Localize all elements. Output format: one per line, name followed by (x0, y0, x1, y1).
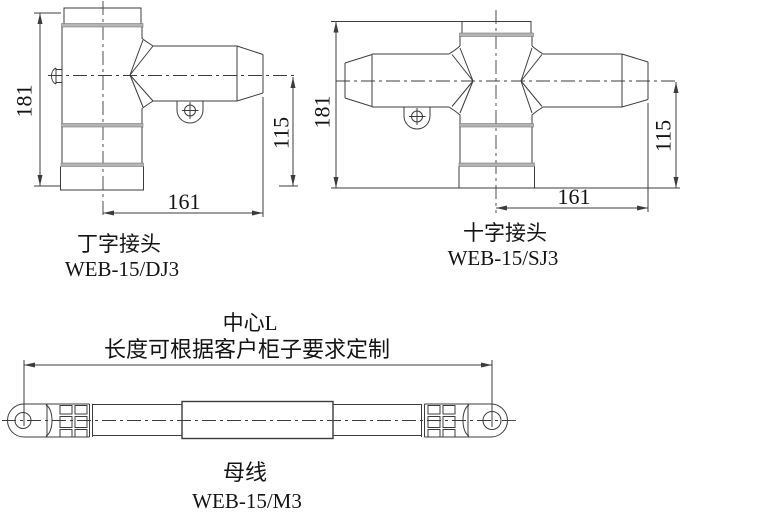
cross-joint-tube-outline (459, 22, 535, 189)
t-joint-figure: 181 115 161 丁字接头 WEB-15/DJ3 (12, 1, 299, 281)
t-joint-nub (52, 68, 63, 84)
t-joint-title: 丁字接头 (77, 232, 161, 256)
cross-joint-centerlines (336, 10, 679, 213)
t-joint-width-value: 161 (168, 189, 201, 214)
busbar-left-end (8, 360, 53, 437)
technical-drawing: 181 115 161 丁字接头 WEB-15/DJ3 (0, 0, 783, 523)
busbar-length-note: 长度可根据客户柜子要求定制 (104, 337, 390, 362)
t-joint-model: WEB-15/DJ3 (65, 257, 179, 281)
busbar-right-end (463, 360, 508, 437)
busbar-title: 母线 (223, 460, 267, 485)
cross-joint-title: 十字接头 (463, 221, 547, 245)
cross-joint-figure: 181 115 161 十字接头 WEB-15/SJ3 (310, 10, 681, 270)
t-joint-branch-height-dimension: 115 (269, 77, 299, 186)
busbar-body (93, 402, 422, 439)
cross-joint-branch-height-dimension: 115 (651, 82, 679, 188)
t-joint-arm-outline (130, 39, 263, 109)
t-joint-width-dimension: 161 (103, 97, 263, 217)
cross-joint-branch-height-value: 115 (651, 120, 676, 152)
t-joint-tube-outline (61, 8, 144, 190)
busbar-center-label: 中心L (223, 311, 278, 335)
busbar-length-dimension: 中心L 长度可根据客户柜子要求定制 (24, 311, 492, 368)
cross-joint-width-value: 161 (558, 184, 591, 209)
busbar-figure: 中心L 长度可根据客户柜子要求定制 母线 WEB-15/M3 (2, 311, 516, 513)
t-joint-height-dimension: 181 (12, 13, 62, 186)
t-joint-height-value: 181 (12, 85, 37, 118)
t-joint-screw-lug (177, 101, 203, 123)
cross-joint-left-arm-outline (345, 46, 473, 115)
t-joint-branch-height-value: 115 (269, 117, 294, 149)
t-joint-centerlines (48, 1, 296, 216)
busbar-model: WEB-15/M3 (192, 489, 302, 513)
cross-joint-right-arm-outline (521, 46, 648, 115)
cross-joint-screw-lug (404, 107, 430, 129)
cross-joint-width-dimension: 161 (496, 103, 648, 212)
cross-joint-height-value: 181 (310, 96, 335, 129)
cross-joint-model: WEB-15/SJ3 (448, 246, 559, 270)
